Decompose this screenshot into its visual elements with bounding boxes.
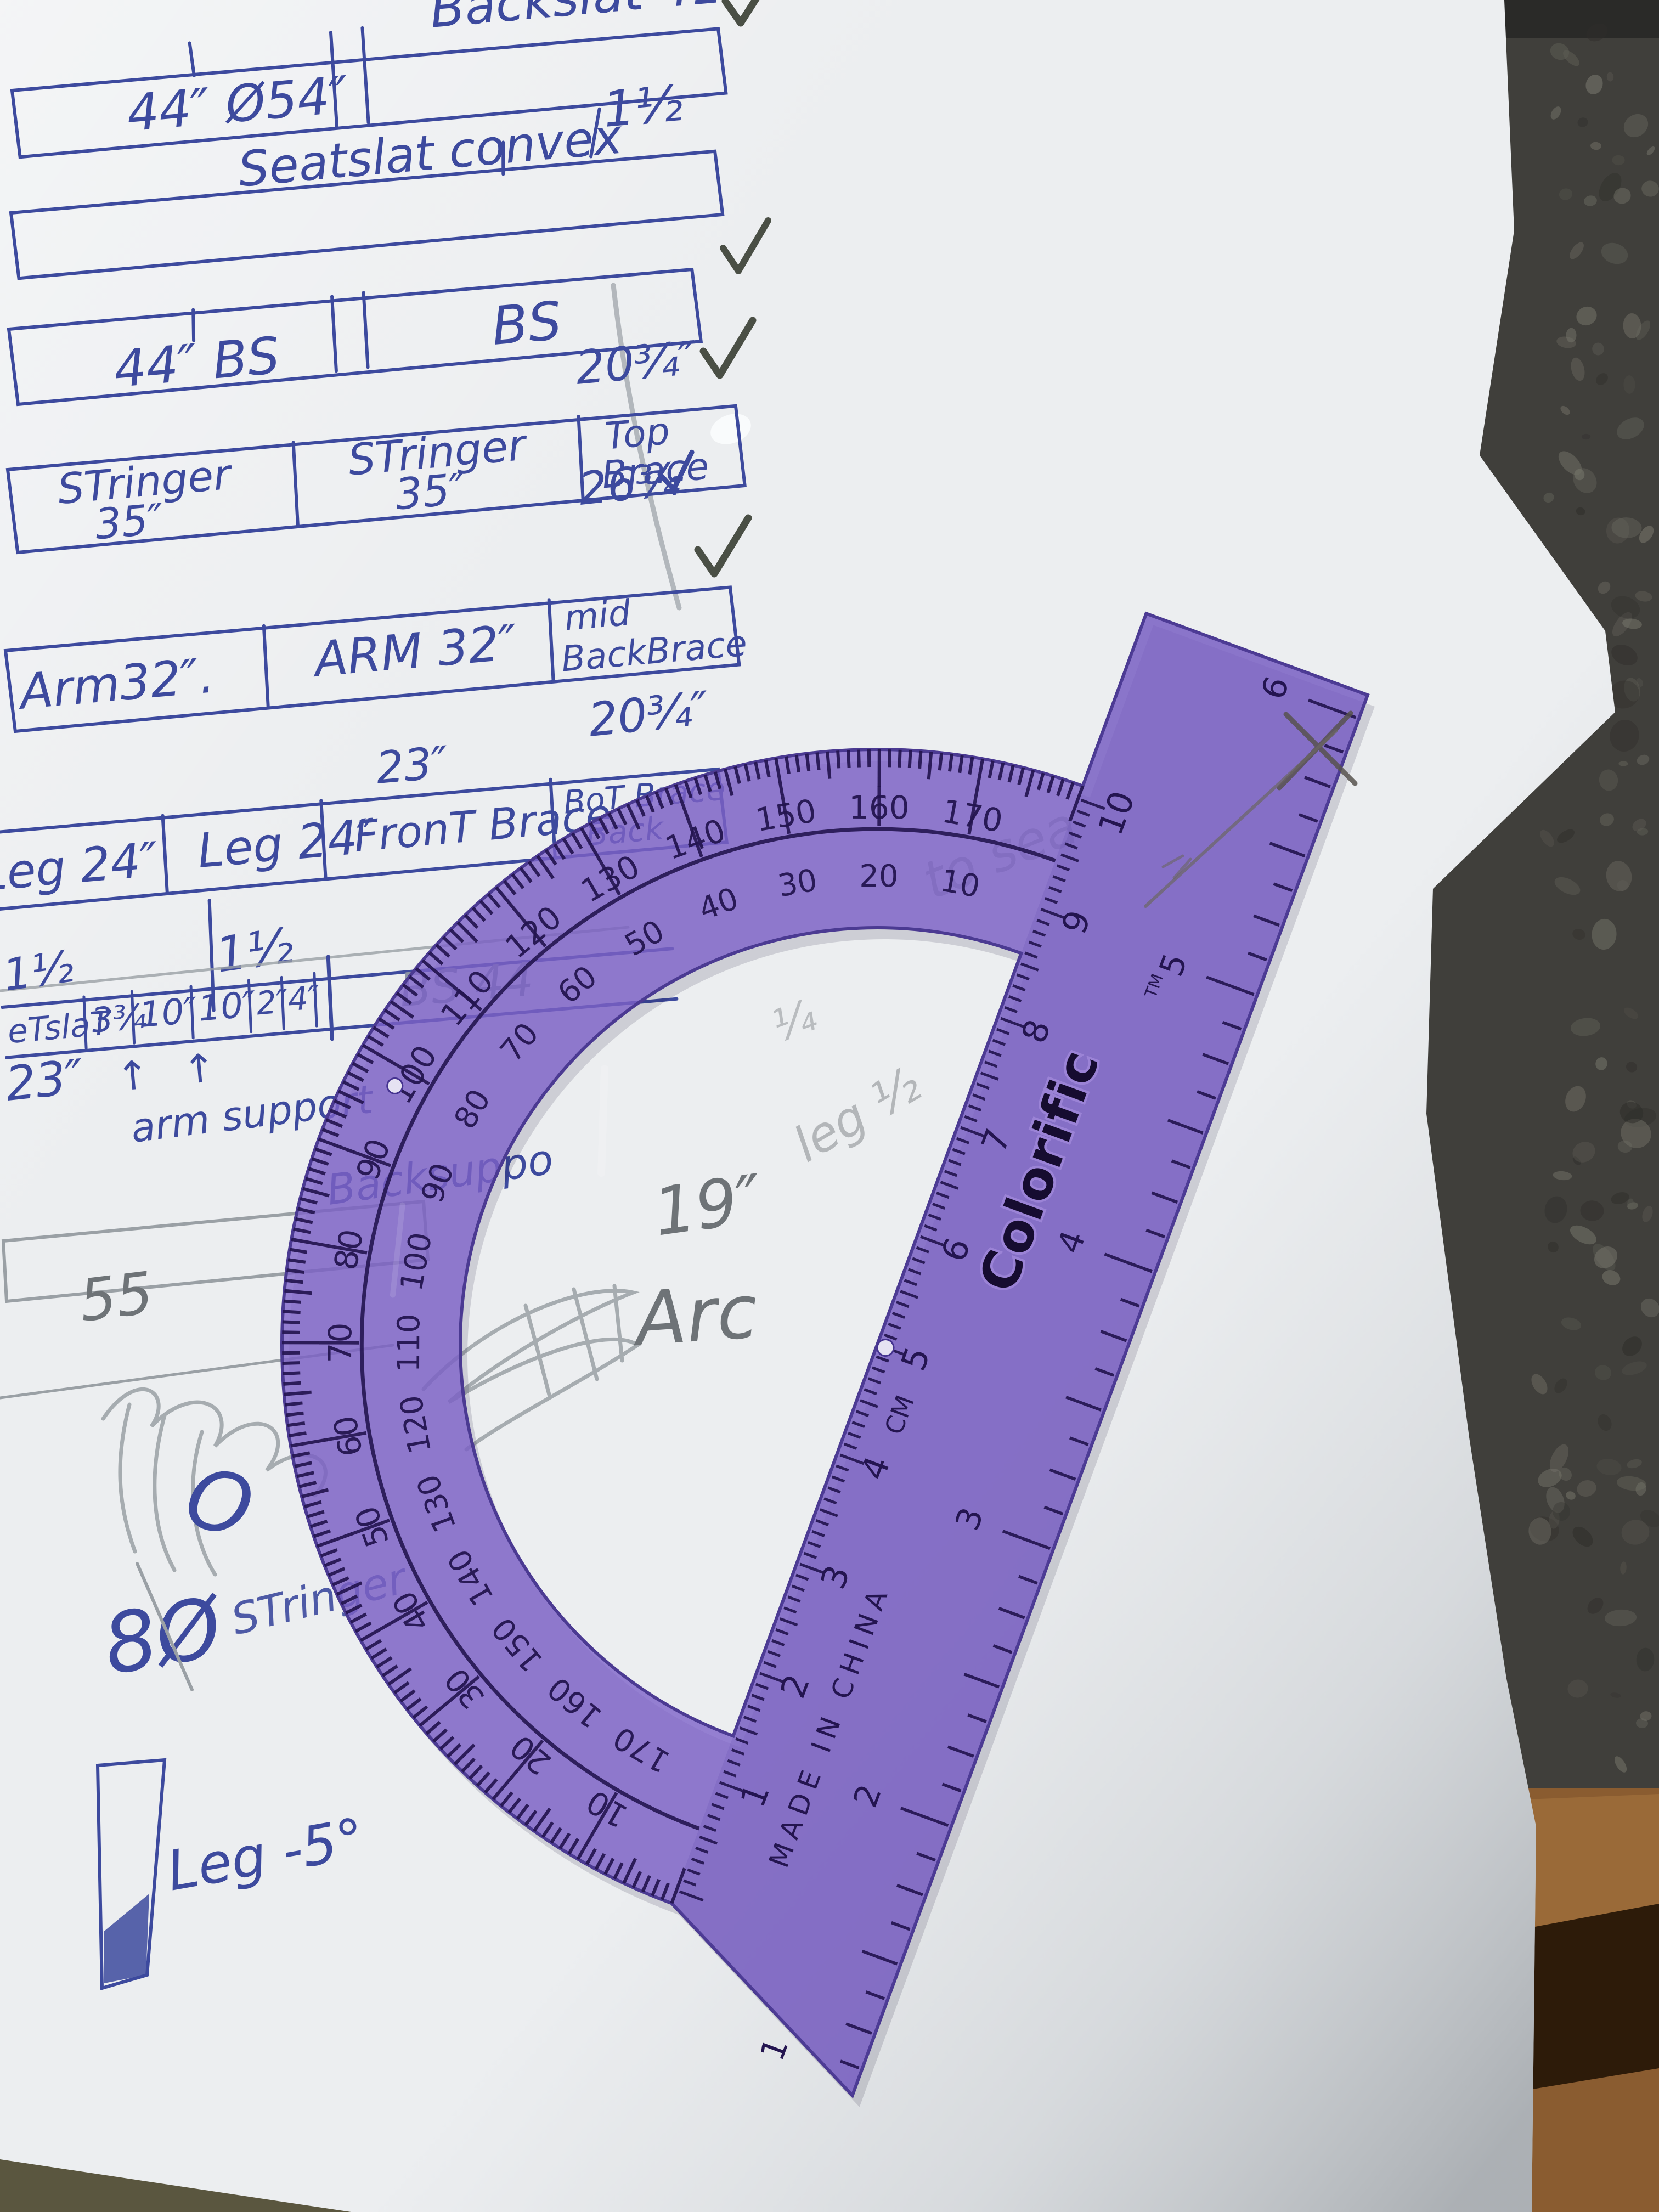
seatslat-dim: 1½ (601, 75, 685, 139)
strip-left-dim: 1½ (0, 941, 77, 1001)
pencil-19-wrap: 19″ (649, 1161, 767, 1251)
photo-scene: 44″ Ø54″ Backslat 41 Seatslat convex 1½ … (0, 0, 1659, 2212)
stringer-cell1-line2: 35″ (93, 494, 165, 549)
note-80-wrap: 8Ø (97, 1579, 230, 1694)
pencil-arc-wrap: Arc (628, 1268, 760, 1363)
dim-front-brace-wrap: 23″ (374, 737, 450, 794)
dim-top-brace-wrap: 20¾″ (573, 331, 698, 395)
strip-text-6: 4″ (286, 979, 322, 1019)
granite-dark-band (1481, 0, 1659, 38)
inner-degree-number: 20 (859, 859, 898, 894)
outer-degree-number: 160 (849, 789, 910, 826)
stringer-cell2-line2: 35″ (393, 465, 468, 520)
strip-text-4: 10″ (196, 984, 257, 1030)
strip-arrow-2: ↑ (181, 1045, 218, 1093)
note-23: 23″ (3, 1049, 86, 1112)
pencil-arc: Arc (628, 1268, 760, 1363)
outer-degree-number: 60 (326, 1413, 370, 1459)
strip-text-5: 2″ (255, 983, 290, 1023)
dim-front-brace: 23″ (374, 737, 450, 794)
outer-degree-number: 80 (327, 1226, 371, 1273)
strip-left-dim-wrap: 1½ (0, 941, 77, 1001)
dim-one-half: 1½ (212, 917, 297, 984)
strip-text-3: 10″ (138, 990, 199, 1036)
strip-arrow-1: ↑ (114, 1051, 151, 1100)
pencil-19: 19″ (649, 1161, 767, 1251)
arm-cell3-line1: mid (563, 593, 633, 639)
inner-degree-number: 110 (391, 1313, 427, 1372)
note-23-wrap: 23″ (3, 1049, 86, 1112)
inner-degree-number: 30 (775, 862, 820, 904)
note-80: 8Ø (97, 1579, 230, 1694)
pencil-55: 55 (76, 1259, 156, 1334)
pencil-55-wrap: 55 (76, 1259, 156, 1334)
inner-degree-number: 10 (938, 863, 983, 905)
bs-right-text: BS (489, 290, 564, 357)
outer-degree-number: 70 (321, 1323, 359, 1363)
dim-top-brace: 20¾″ (573, 331, 698, 395)
